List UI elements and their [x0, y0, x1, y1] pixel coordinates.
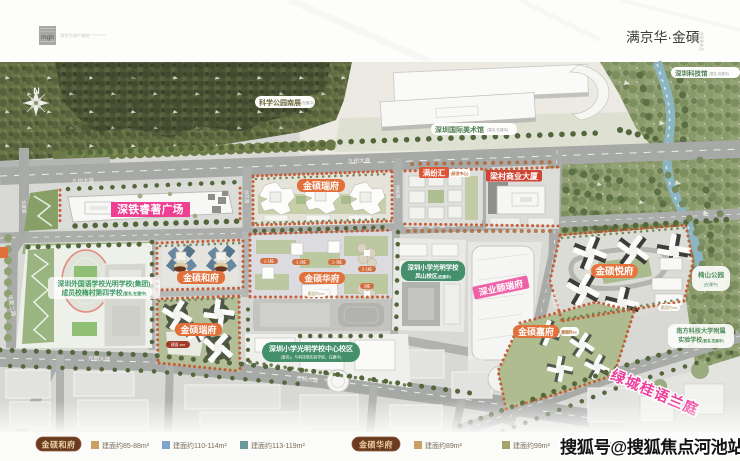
svg-text:建面约xx: 建面约xx [560, 330, 578, 335]
svg-text:建面约99m²: 建面约99m² [513, 441, 551, 450]
svg-text:金硕华府: 金硕华府 [358, 440, 393, 450]
svg-text:金硕瑞府: 金硕瑞府 [302, 180, 339, 191]
svg-text:金硕嘉府: 金硕嘉府 [517, 326, 554, 337]
svg-text:金硕瑞府: 金硕瑞府 [179, 324, 216, 335]
svg-text:3栋: 3栋 [364, 283, 371, 290]
svg-text:建面约113-119m²: 建面约113-119m² [251, 441, 305, 450]
svg-text:金硕悦府: 金硕悦府 [594, 266, 634, 278]
svg-text:2-1栋: 2-1栋 [362, 266, 372, 273]
svg-text:1-3栋: 1-3栋 [332, 259, 342, 266]
svg-text:1-1栋: 1-1栋 [264, 258, 274, 265]
svg-text:满京华·金碩: 满京华·金碩 [626, 30, 700, 45]
svg-text:金硕和府: 金硕和府 [182, 272, 219, 283]
svg-text:(在建中): (在建中) [301, 100, 314, 105]
svg-text:金硕系作品: 金硕系作品 [699, 32, 704, 51]
svg-text:深圳外国语学校光明学校(集团): 深圳外国语学校光明学校(集团) [58, 279, 151, 288]
svg-text:(研发中心): (研发中心) [451, 171, 469, 176]
svg-text:(在建中): (在建中) [704, 281, 719, 287]
svg-text:搜狐号@搜狐焦点河池站: 搜狐号@搜狐焦点河池站 [560, 437, 740, 457]
svg-text:建面约xxx: 建面约xxx [660, 305, 677, 310]
svg-text:椅山公园: 椅山公园 [698, 270, 725, 279]
svg-text:(暂名,在建中): (暂名,在建中) [709, 71, 729, 76]
svg-text:(暂名,在建中): (暂名,在建中) [487, 127, 508, 132]
svg-text:建面约89m²: 建面约89m² [425, 441, 463, 450]
svg-text:金硕和府: 金硕和府 [41, 440, 76, 450]
svg-text:满京华地产集团: 满京华地产集团 [60, 32, 89, 39]
svg-text:满纷汇: 满纷汇 [423, 168, 446, 178]
svg-text:建面约110-114m²: 建面约110-114m² [173, 441, 227, 450]
svg-text:深圳小学光明学校中心校区: 深圳小学光明学校中心校区 [269, 344, 353, 353]
svg-text:深铁睿著广场: 深铁睿著广场 [117, 202, 184, 216]
svg-text:深圳小学光明学校: 深圳小学光明学校 [407, 263, 459, 272]
svg-text:科学公园南展: 科学公园南展 [259, 98, 302, 107]
svg-text:1-2栋: 1-2栋 [296, 259, 306, 266]
svg-text:深圳国际美术馆: 深圳国际美术馆 [435, 125, 484, 134]
svg-text:梁村商业大厦: 梁村商业大厦 [489, 171, 539, 181]
svg-text:建面约85-88m²: 建面约85-88m² [102, 441, 150, 450]
svg-text:深圳科技馆: 深圳科技馆 [675, 69, 708, 78]
svg-text:(暂名)，与科技馆实验学校，在建中): (暂名)，与科技馆实验学校，在建中) [281, 355, 342, 360]
svg-text:建面 xxx: 建面 xxx [171, 342, 185, 347]
svg-text:南方科技大学附属: 南方科技大学附属 [676, 327, 726, 335]
svg-text:建面约xxx: 建面约xxx [307, 291, 324, 296]
svg-text:金硕华府: 金硕华府 [303, 273, 339, 284]
svg-text:mgh: mgh [41, 34, 54, 41]
